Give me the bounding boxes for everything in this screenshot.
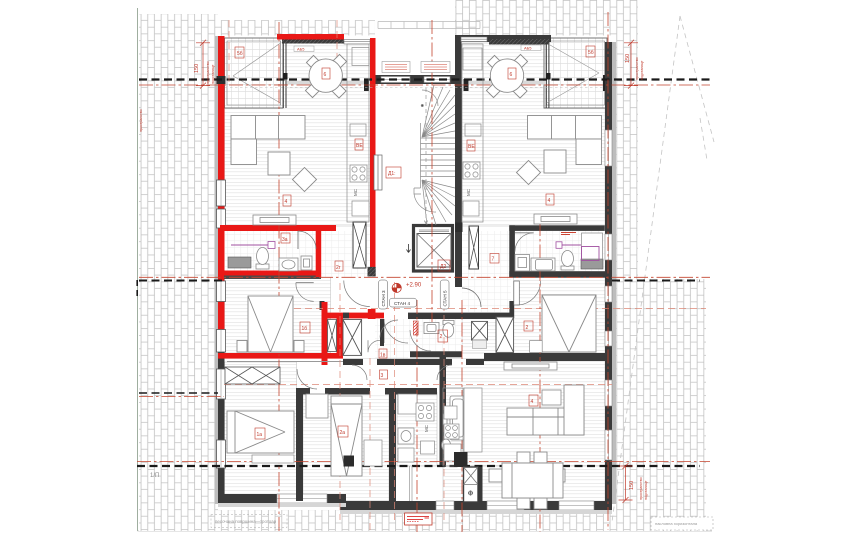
svg-text:4: 4 — [531, 399, 534, 405]
svg-text:150: 150 — [629, 481, 635, 490]
svg-text:АБ5: АБ5 — [524, 46, 532, 51]
svg-text:насловна хоризонтала: насловна хоризонтала — [655, 521, 698, 526]
svg-text:АБ5: АБ5 — [297, 47, 305, 52]
svg-text:3: 3 — [381, 373, 384, 379]
svg-text:4: 4 — [548, 198, 551, 204]
svg-text:6: 6 — [510, 72, 513, 78]
svg-text:пространство: пространство — [639, 477, 643, 500]
svg-text:6: 6 — [324, 72, 327, 78]
svg-text:МС: МС — [424, 424, 429, 432]
svg-text:2а: 2а — [340, 430, 346, 436]
svg-text:4: 4 — [285, 199, 288, 205]
svg-text:2: 2 — [440, 334, 443, 340]
svg-text:1б: 1б — [302, 326, 308, 332]
svg-text:песочана површина—тротоар: песочана површина—тротоар — [215, 519, 277, 524]
svg-text:подстанице: подстанице — [640, 61, 644, 80]
svg-text:СТАН 5: СТАН 5 — [443, 290, 448, 306]
svg-text:7: 7 — [492, 257, 495, 263]
svg-text:150: 150 — [625, 54, 631, 63]
svg-text:1/П: 1/П — [150, 473, 159, 479]
svg-text:5б: 5б — [237, 51, 243, 57]
svg-text:5б: 5б — [588, 50, 594, 56]
svg-text:150: 150 — [194, 64, 200, 73]
svg-text:ВЕ: ВЕ — [468, 144, 475, 150]
svg-text:пространство: пространство — [139, 109, 143, 132]
svg-text:подстанице: подстанице — [211, 65, 215, 84]
svg-text:МС: МС — [353, 188, 358, 196]
svg-text:Д1:: Д1: — [388, 171, 396, 177]
svg-text:подстанице: подстанице — [644, 481, 648, 500]
svg-text:2г: 2г — [336, 265, 341, 271]
svg-text:1а: 1а — [257, 432, 263, 438]
svg-text:пространство: пространство — [206, 61, 210, 84]
svg-text:1в: 1в — [380, 353, 386, 359]
svg-text:пространство: пространство — [635, 57, 639, 80]
svg-text:+2.90: +2.90 — [406, 283, 422, 289]
svg-text:2: 2 — [526, 325, 529, 331]
svg-text:МС: МС — [466, 188, 471, 196]
svg-text:3а: 3а — [282, 237, 288, 243]
svg-text:СТАН 3: СТАН 3 — [381, 290, 386, 306]
svg-text:Д2: Д2 — [440, 264, 446, 270]
svg-text:СТАН 4: СТАН 4 — [394, 301, 410, 306]
svg-text:ВЕ: ВЕ — [356, 143, 363, 149]
